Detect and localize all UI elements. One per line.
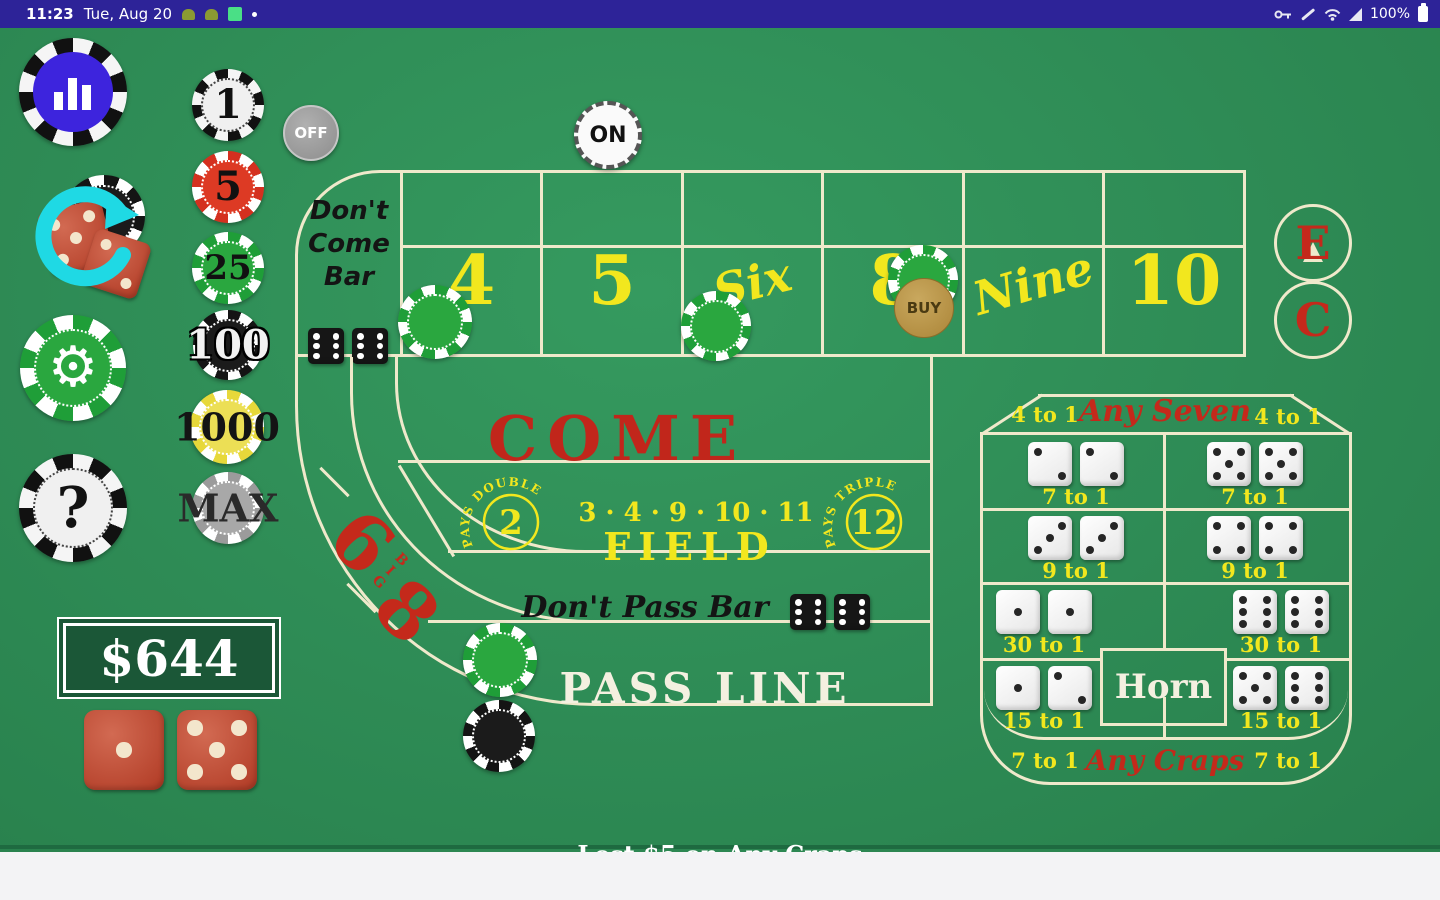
rack-chip-1[interactable]: 1 bbox=[192, 69, 264, 141]
bet-area-any-seven[interactable]: Any Seven bbox=[1075, 394, 1255, 429]
rack-chip-max[interactable]: MAX bbox=[192, 472, 264, 544]
bet-area-point-9[interactable]: Nine bbox=[962, 170, 1105, 357]
balance-amount: $644 bbox=[99, 629, 238, 688]
die-face-5 bbox=[1233, 666, 1277, 710]
die-face-1 bbox=[84, 710, 164, 790]
bet-area-eleven-E[interactable]: E bbox=[1274, 204, 1352, 282]
die-face-6 bbox=[1285, 666, 1329, 710]
die-face-4 bbox=[1207, 516, 1251, 560]
point-5-label: 5 bbox=[543, 247, 681, 315]
question-mark-icon: ? bbox=[57, 475, 90, 541]
any-craps-odds-right: 7 to 1 bbox=[1238, 748, 1338, 773]
settings-chip-button[interactable]: ⚙ bbox=[20, 315, 126, 421]
die-face-2 bbox=[1080, 442, 1124, 486]
bet-area-point-10[interactable]: 10 bbox=[1102, 170, 1246, 357]
settings-chip-face: ⚙ bbox=[34, 329, 112, 407]
die-face-3 bbox=[1028, 516, 1072, 560]
bet-area-hard-10[interactable] bbox=[1207, 442, 1303, 486]
field-12-number: 12 bbox=[850, 503, 897, 543]
die-face-6 bbox=[834, 594, 870, 630]
rack-chip-1000[interactable]: 1000 bbox=[190, 390, 264, 464]
bet-chip-point-6[interactable] bbox=[681, 291, 751, 361]
bet-area-ace-deuce[interactable] bbox=[996, 666, 1092, 710]
bet-area-aces[interactable] bbox=[996, 590, 1092, 634]
hard-8-odds: 9 to 1 bbox=[1195, 558, 1315, 583]
craps-app-screen: 11:23 Tue, Aug 20 100% Don't Come Bar 4 bbox=[0, 0, 1440, 900]
die-face-6 bbox=[1233, 590, 1277, 634]
bet-area-hard-4[interactable] bbox=[1028, 442, 1124, 486]
bet-chip-point-4[interactable] bbox=[398, 285, 472, 359]
field-2-number: 2 bbox=[499, 503, 523, 543]
status-bar-right: 100% bbox=[1274, 6, 1440, 22]
stats-chip-face bbox=[33, 52, 113, 132]
bet-area-come[interactable]: COME bbox=[350, 402, 885, 475]
bet-area-boxcars[interactable] bbox=[1233, 590, 1329, 634]
signal-icon bbox=[1349, 8, 1362, 21]
table-felt: Don't Come Bar 4 5 Six 8 Nine 10 bbox=[0, 28, 1440, 852]
status-bar: 11:23 Tue, Aug 20 100% bbox=[0, 0, 1440, 28]
android-nav-bar bbox=[0, 852, 1440, 900]
key-icon bbox=[1274, 9, 1292, 20]
any-seven-odds-right: 4 to 1 bbox=[1243, 404, 1333, 429]
dont-come-label-line3: Bar bbox=[295, 264, 403, 290]
prop-center-line bbox=[1163, 432, 1166, 648]
hard-6-odds: 9 to 1 bbox=[1016, 558, 1136, 583]
roll-dice-button[interactable] bbox=[25, 173, 160, 303]
bet-area-pass-line[interactable]: PASS LINE bbox=[540, 664, 870, 713]
point-10-label: 10 bbox=[1105, 247, 1243, 315]
on-puck: ON bbox=[574, 101, 642, 169]
status-bar-left: 11:23 Tue, Aug 20 bbox=[0, 5, 257, 23]
battery-percent: 100% bbox=[1370, 6, 1410, 22]
clock: 11:23 bbox=[26, 5, 74, 23]
rack-chip-25[interactable]: 25 bbox=[192, 232, 264, 304]
die-face-5 bbox=[1259, 442, 1303, 486]
wifi-icon bbox=[1324, 8, 1341, 21]
stats-chip-button[interactable] bbox=[19, 38, 127, 146]
come-point-band bbox=[403, 173, 540, 248]
come-point-band bbox=[1105, 173, 1243, 248]
bet-area-point-5[interactable]: 5 bbox=[540, 170, 684, 357]
boxcars-odds: 30 to 1 bbox=[1221, 632, 1341, 657]
bet-area-hard-8[interactable] bbox=[1207, 516, 1303, 560]
help-chip-button[interactable]: ? bbox=[19, 454, 127, 562]
hard-10-odds: 7 to 1 bbox=[1195, 484, 1315, 509]
come-point-band bbox=[543, 173, 681, 248]
off-puck: OFF bbox=[283, 105, 339, 161]
bet-area-craps-C[interactable]: C bbox=[1274, 281, 1352, 359]
die-face-2 bbox=[1048, 666, 1092, 710]
gear-icon: ⚙ bbox=[48, 340, 98, 396]
notification-icon bbox=[205, 9, 218, 20]
refresh-arrow-icon bbox=[27, 181, 147, 301]
hard-4-odds: 7 to 1 bbox=[1016, 484, 1136, 509]
dont-pass-bar-dice bbox=[790, 594, 870, 630]
bet-area-field[interactable]: FIELD bbox=[540, 524, 840, 569]
rolled-dice bbox=[84, 710, 257, 790]
buy-marker: BUY bbox=[894, 278, 954, 338]
die-face-1 bbox=[996, 666, 1040, 710]
notification-dot-icon bbox=[252, 12, 257, 17]
help-chip-face: ? bbox=[33, 468, 113, 548]
die-face-5 bbox=[177, 710, 257, 790]
die-face-4 bbox=[1259, 516, 1303, 560]
die-face-5 bbox=[1207, 442, 1251, 486]
bet-area-any-craps[interactable]: Any Craps bbox=[1075, 744, 1255, 777]
battery-icon bbox=[1418, 6, 1428, 22]
notification-icon bbox=[182, 9, 195, 20]
balance-display: $644 bbox=[57, 617, 281, 699]
come-point-band bbox=[824, 173, 962, 248]
notification-square-icon bbox=[228, 7, 242, 21]
rack-chip-100[interactable]: 100 bbox=[193, 310, 263, 380]
bet-area-six-five[interactable] bbox=[1233, 666, 1329, 710]
bet-chip-pass-line[interactable] bbox=[463, 623, 537, 697]
dont-come-label-line1: Don't bbox=[295, 198, 403, 224]
rack-chip-5[interactable]: 5 bbox=[192, 151, 264, 223]
ace-deuce-odds: 15 to 1 bbox=[984, 708, 1104, 733]
stylus-icon bbox=[1301, 8, 1315, 20]
die-face-3 bbox=[1080, 516, 1124, 560]
six-five-odds: 15 to 1 bbox=[1221, 708, 1341, 733]
bet-area-horn[interactable]: Horn bbox=[1100, 648, 1227, 726]
aces-odds: 30 to 1 bbox=[984, 632, 1104, 657]
die-face-1 bbox=[996, 590, 1040, 634]
die-face-6 bbox=[790, 594, 826, 630]
die-face-1 bbox=[1048, 590, 1092, 634]
date: Tue, Aug 20 bbox=[84, 5, 172, 23]
bar-chart-icon bbox=[50, 72, 96, 112]
dont-come-label-line2: Come bbox=[295, 231, 403, 257]
die-face-6 bbox=[1285, 590, 1329, 634]
bet-chip-off-pass-line[interactable] bbox=[463, 700, 535, 772]
bet-area-dont-pass[interactable]: Don't Pass Bar bbox=[500, 590, 790, 625]
die-face-2 bbox=[1028, 442, 1072, 486]
bet-area-hard-6[interactable] bbox=[1028, 516, 1124, 560]
